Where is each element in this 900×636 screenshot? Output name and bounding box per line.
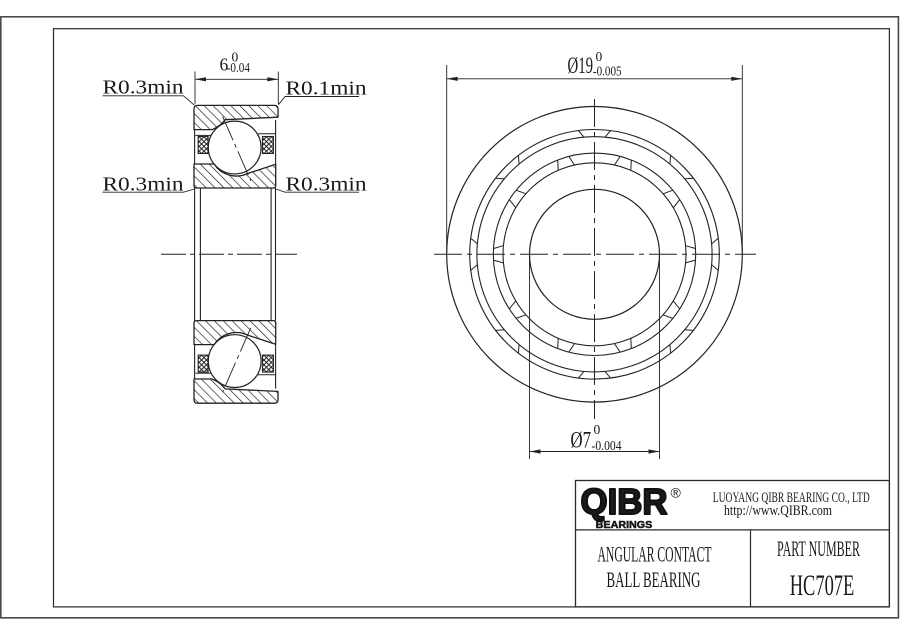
svg-text:HC707E: HC707E	[790, 569, 855, 602]
svg-text:ANGULAR CONTACT: ANGULAR CONTACT	[598, 542, 712, 567]
svg-text:BEARINGS: BEARINGS	[596, 519, 653, 531]
svg-text:R0.3min: R0.3min	[103, 78, 184, 99]
svg-text:-0.04: -0.04	[227, 60, 251, 75]
svg-text:-0.005: -0.005	[593, 63, 622, 78]
svg-text:-0.004: -0.004	[592, 438, 622, 453]
svg-text:BALL BEARING: BALL BEARING	[607, 567, 701, 592]
svg-text:PART NUMBER: PART NUMBER	[777, 536, 860, 561]
svg-text:®: ®	[671, 485, 682, 501]
svg-text:Ø19: Ø19	[568, 53, 594, 78]
svg-text:http://www.QIBR.com: http://www.QIBR.com	[724, 503, 833, 519]
svg-text:0: 0	[596, 49, 603, 64]
svg-text:0: 0	[594, 422, 601, 437]
svg-text:QIBR: QIBR	[581, 481, 668, 522]
svg-text:Ø7: Ø7	[571, 427, 592, 452]
